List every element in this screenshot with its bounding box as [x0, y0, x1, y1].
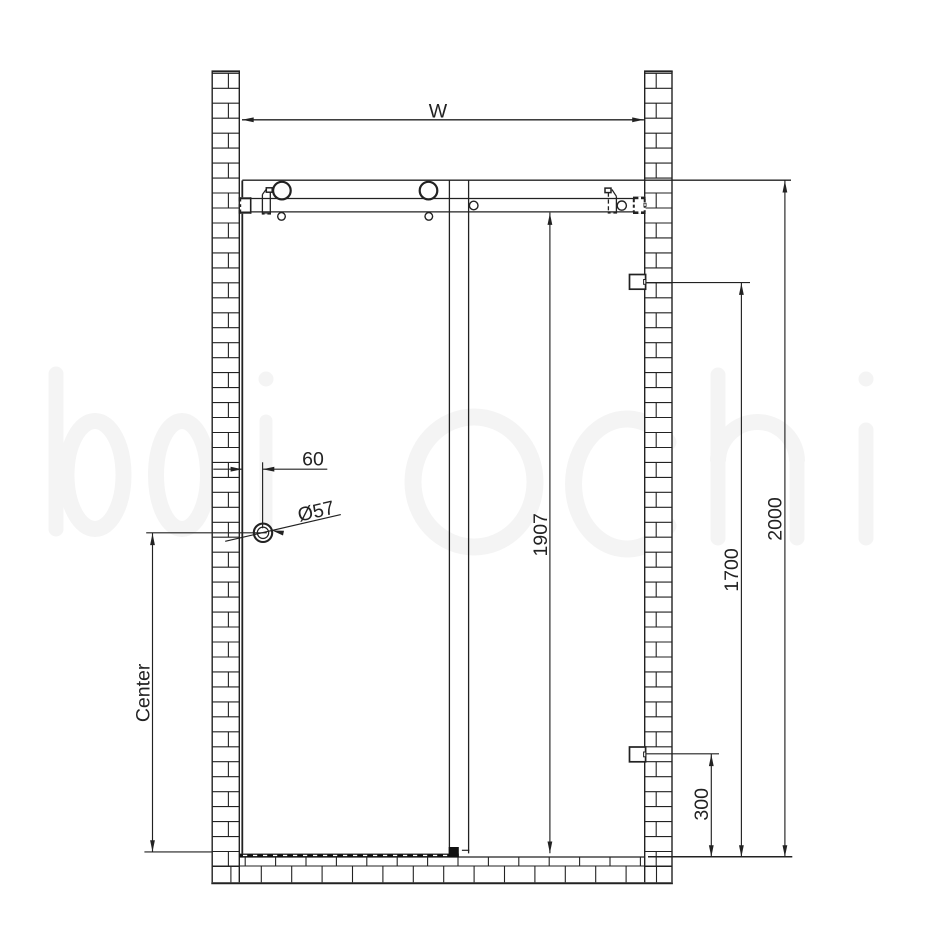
svg-text:1700: 1700	[721, 548, 743, 592]
svg-text:300: 300	[691, 788, 713, 821]
svg-text:1907: 1907	[530, 513, 552, 556]
svg-text:W: W	[429, 100, 448, 122]
svg-text:Center: Center	[132, 663, 154, 722]
svg-text:2000: 2000	[765, 497, 787, 541]
svg-text:60: 60	[302, 448, 324, 470]
